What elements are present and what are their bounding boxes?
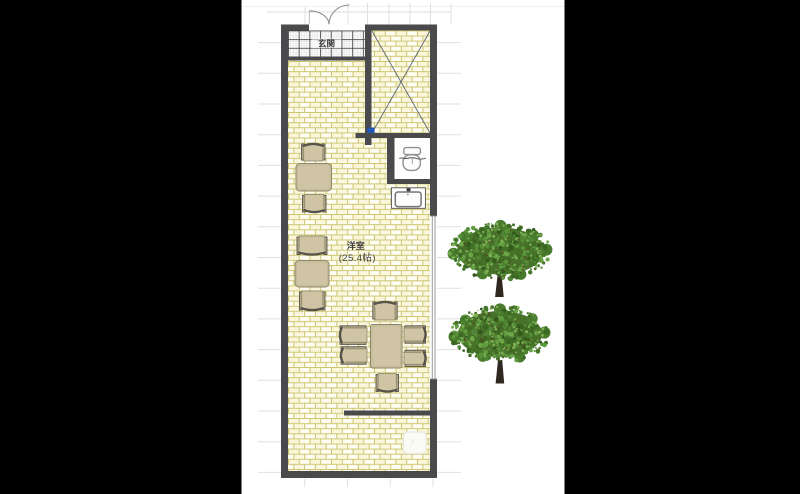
- svg-text:玄関: 玄関: [318, 39, 335, 49]
- svg-text:(25.4帖): (25.4帖): [339, 252, 376, 264]
- svg-text:洋室: 洋室: [347, 240, 365, 251]
